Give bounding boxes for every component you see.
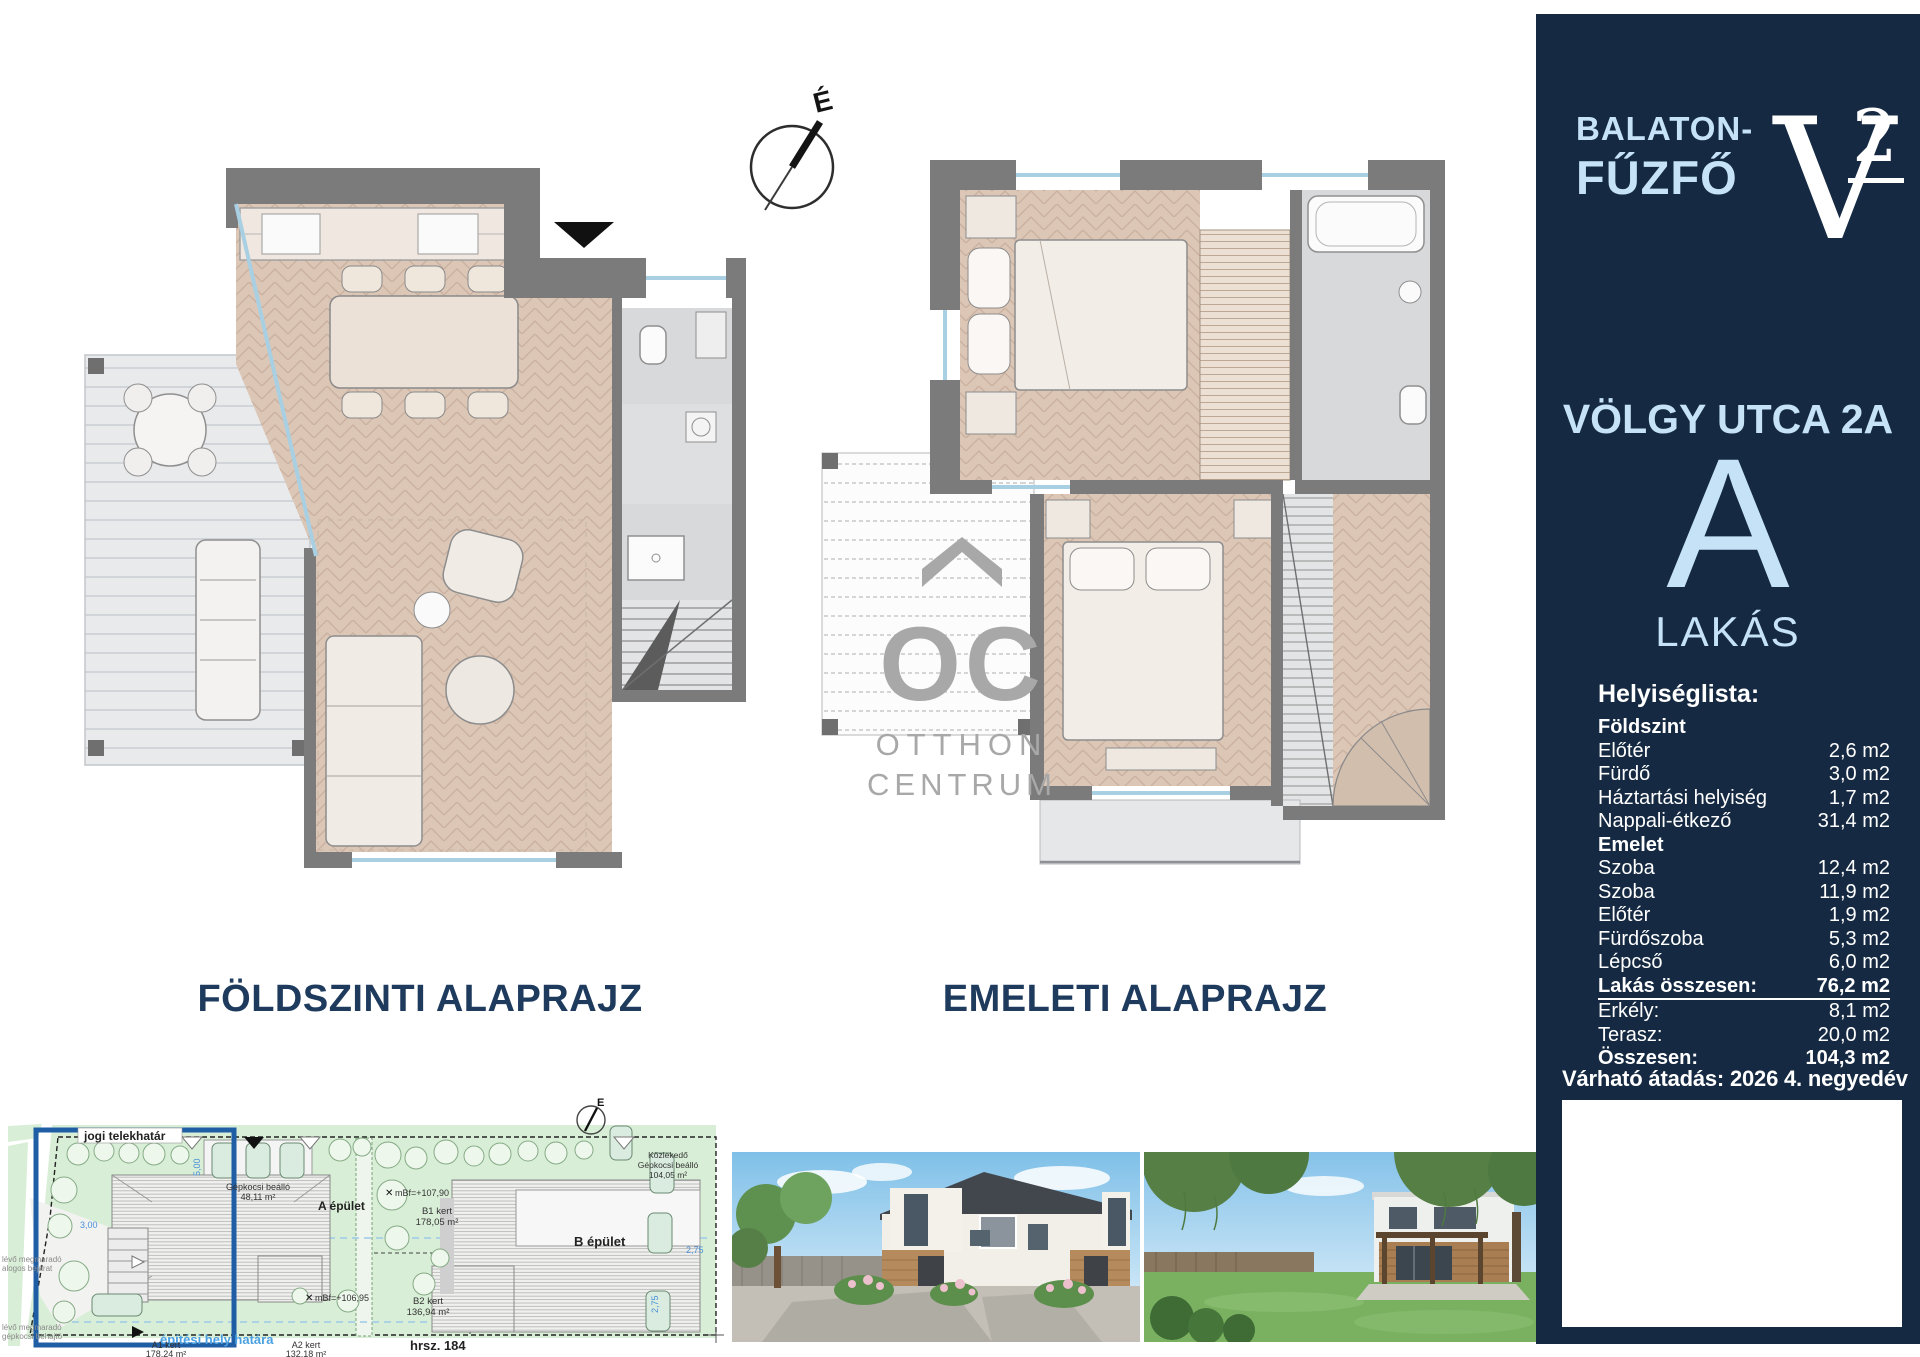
room-row: Fürdőszoba5,3 m2	[1598, 928, 1890, 952]
dining-table	[330, 266, 518, 418]
svg-text:B2 kert: B2 kert	[413, 1296, 443, 1307]
svg-text:Gépkocsi beálló: Gépkocsi beálló	[638, 1160, 699, 1170]
room-row: Szoba11,9 m2	[1598, 881, 1890, 905]
svg-text:178,24 m²: 178,24 m²	[146, 1349, 187, 1357]
watermark-line2: CENTRUM	[867, 767, 1057, 802]
svg-text:48,11 m²: 48,11 m²	[241, 1192, 276, 1202]
svg-text:lévő megmaradó: lévő megmaradó	[2, 1255, 62, 1264]
unit-type: LAKÁS	[1536, 608, 1920, 656]
upper-plan-caption: EMELETI ALAPRAJZ	[810, 978, 1460, 1021]
empty-photo-box	[1562, 1100, 1902, 1327]
svg-text:É: É	[597, 1098, 604, 1109]
room-row: Terasz:20,0 m2	[1598, 1024, 1890, 1048]
location-line1: BALATON-	[1576, 110, 1753, 148]
room-list: Földszint Előtér2,6 m2 Fürdő3,0 m2 Házta…	[1598, 716, 1890, 1071]
location-line2: FŰZFŐ	[1576, 150, 1738, 205]
kitchen-block	[240, 208, 520, 260]
svg-text:2,75: 2,75	[650, 1295, 660, 1313]
flyer-page: É	[0, 0, 1920, 1357]
svg-text:B1 kert: B1 kert	[422, 1206, 452, 1217]
svg-text:✕: ✕	[385, 1188, 393, 1199]
room-row: Fürdő3,0 m2	[1598, 763, 1890, 787]
svg-text:178,05 m²: 178,05 m²	[416, 1217, 459, 1228]
svg-text:136,94 m²: 136,94 m²	[407, 1307, 450, 1318]
svg-text:gépkocsi behajtó: gépkocsi behajtó	[2, 1332, 63, 1341]
svg-text:2,75: 2,75	[686, 1245, 704, 1255]
room-row: Emelet	[1598, 834, 1890, 858]
room-row: Szoba12,4 m2	[1598, 857, 1890, 881]
v2-logo-sup: 2	[1852, 100, 1898, 172]
ground-bath-column	[622, 308, 732, 690]
delivery-date: Várható átadás: 2026 4. negyedév	[1562, 1066, 1908, 1092]
room-row: Háztartási helyiség1,7 m2	[1598, 787, 1890, 811]
watermark-line1: OTTHON	[876, 727, 1049, 762]
upper-floor-plan: OC OTTHON CENTRUM	[810, 100, 1470, 900]
svg-text:✕: ✕	[305, 1293, 313, 1304]
wardrobe	[1200, 230, 1290, 480]
room-row: Előtér1,9 m2	[1598, 904, 1890, 928]
parcel-number: hrsz. 184	[410, 1338, 466, 1353]
svg-text:Közlekedő: Közlekedő	[648, 1150, 688, 1160]
v2-logo-bar	[1848, 178, 1904, 183]
svg-text:3,00: 3,00	[80, 1220, 98, 1230]
svg-text:Gépkocsi beálló: Gépkocsi beálló	[226, 1182, 290, 1192]
building-a-label: A épület	[318, 1199, 365, 1213]
svg-text:5,00: 5,00	[192, 1158, 202, 1176]
boundary-label: jogi telekhatár	[83, 1129, 166, 1143]
svg-text:mBf=+107,90: mBf=+107,90	[395, 1188, 449, 1198]
room-row: Lépcső6,0 m2	[1598, 951, 1890, 975]
balcony	[1040, 800, 1300, 864]
info-sidebar: BALATON- FŰZFŐ V 2 VÖLGY UTCA 2A A LAKÁS…	[1536, 14, 1920, 1344]
exterior-photo-front	[732, 1152, 1140, 1342]
room-row: Előtér2,6 m2	[1598, 740, 1890, 764]
svg-text:lévő megmaradó: lévő megmaradó	[2, 1323, 62, 1332]
room-row: Nappali-étkező31,4 m2	[1598, 810, 1890, 834]
room-row: Erkély:8,1 m2	[1598, 1000, 1890, 1024]
room-row: Földszint	[1598, 716, 1890, 740]
entrance-arrow-icon	[554, 222, 614, 248]
exterior-photo-garden	[1144, 1152, 1537, 1342]
svg-text:132,18 m²: 132,18 m²	[286, 1349, 327, 1357]
svg-text:mBf=+106,95: mBf=+106,95	[315, 1293, 369, 1303]
room-row-total-flat: Lakás összesen:76,2 m2	[1598, 975, 1890, 1001]
building-b-label: B épület	[574, 1234, 626, 1249]
ground-floor-plan	[80, 100, 760, 900]
room-list-title: Helyiséglista:	[1598, 680, 1759, 709]
svg-text:104,05 m²: 104,05 m²	[649, 1170, 687, 1180]
ground-plan-caption: FÖLDSZINTI ALAPRAJZ	[80, 978, 760, 1021]
site-plan: É jogi telekhatár Gépkocsi beálló 48,11 …	[0, 1098, 730, 1357]
unit-letter: A	[1536, 432, 1920, 617]
watermark-letters: OC	[879, 606, 1045, 723]
v2-logo: V 2	[1774, 96, 1904, 276]
svg-text:alogos bejárat: alogos bejárat	[2, 1264, 53, 1273]
